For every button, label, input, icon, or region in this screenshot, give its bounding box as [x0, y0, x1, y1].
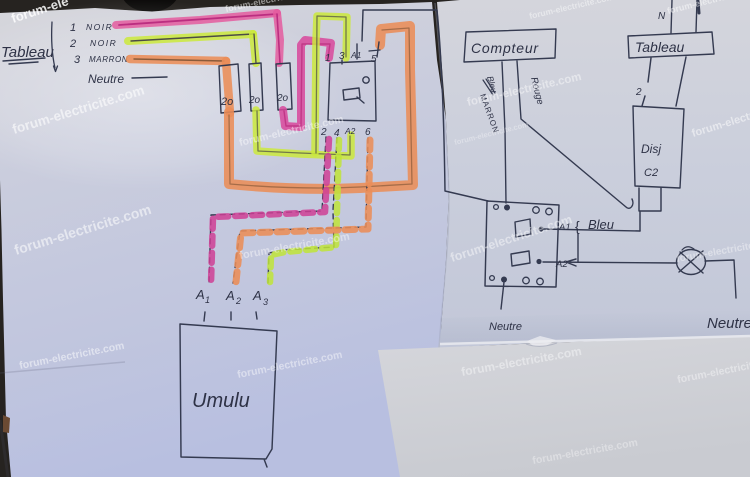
svg-text:6: 6 [365, 127, 371, 138]
svg-text:C2: C2 [644, 167, 658, 179]
svg-text:Tableau: Tableau [635, 39, 685, 55]
svg-text:A2: A2 [344, 126, 356, 136]
svg-text:NOIR: NOIR [90, 38, 117, 48]
svg-text:MARRON: MARRON [89, 55, 128, 64]
svg-text:Tableau: Tableau [1, 44, 54, 61]
svg-text:Bleu: Bleu [588, 217, 614, 232]
svg-text:2: 2 [235, 296, 241, 306]
svg-text:A2: A2 [555, 259, 568, 270]
svg-text:5: 5 [371, 54, 377, 65]
svg-text:1: 1 [325, 53, 331, 64]
svg-text:Umulu: Umulu [192, 390, 250, 412]
svg-text:Neutre: Neutre [489, 321, 522, 333]
svg-text:2: 2 [635, 87, 642, 98]
svg-text:Neutre: Neutre [707, 315, 750, 332]
svg-text:N: N [658, 11, 666, 22]
svg-text:2o: 2o [248, 95, 261, 106]
svg-text:3: 3 [263, 297, 268, 307]
svg-text:A: A [225, 288, 235, 303]
svg-text:A: A [195, 287, 205, 302]
svg-text:3: 3 [74, 54, 81, 66]
svg-text:A: A [252, 288, 262, 303]
svg-text:{: { [575, 218, 580, 234]
svg-text:1: 1 [205, 295, 210, 305]
svg-text:Compteur: Compteur [471, 40, 539, 56]
svg-text:1: 1 [70, 22, 76, 34]
svg-text:Disj: Disj [641, 142, 661, 156]
svg-text:NOIR: NOIR [86, 22, 113, 32]
svg-text:A1: A1 [350, 50, 362, 60]
svg-text:2o: 2o [220, 96, 233, 108]
svg-text:2o: 2o [276, 93, 289, 104]
svg-text:2: 2 [69, 38, 76, 50]
svg-text:Neutre: Neutre [88, 72, 124, 86]
